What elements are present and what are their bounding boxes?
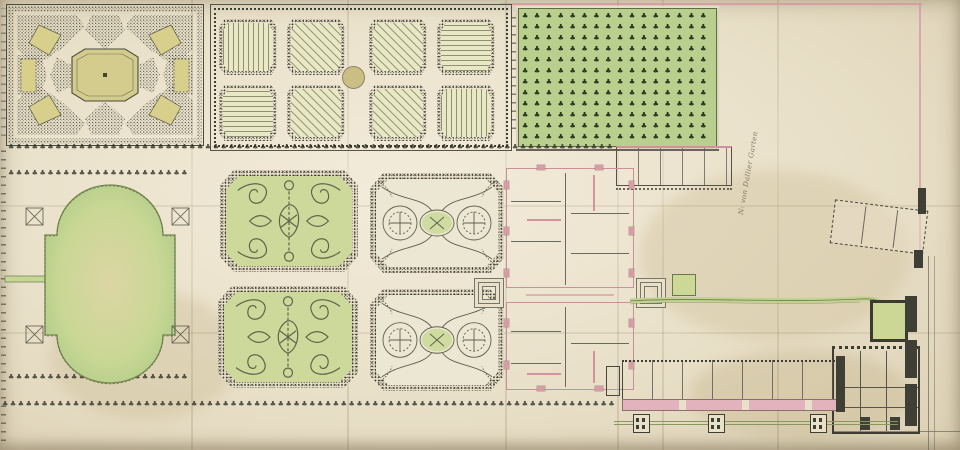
parterre-broderie-ne [370, 173, 504, 273]
orchard-tree-grid: ♣♣♣♣♣♣♣♣♣♣♣♣♣♣♣♣♣♣♣♣♣♣♣♣♣♣♣♣♣♣♣♣♣♣♣♣♣♣♣♣… [522, 11, 714, 144]
parterre-broderie-se [370, 289, 504, 391]
west-annex [606, 366, 620, 396]
palace-west-portico [482, 286, 496, 300]
road-line [934, 256, 935, 450]
wall-fragment [905, 384, 917, 426]
garden-plan-canvas: ♣♣♣♣♣♣♣♣♣♣♣♣♣♣♣♣♣♣♣♣♣♣♣♣♣♣♣♣♣♣♣♣♣♣♣♣♣♣♣♣… [0, 0, 960, 450]
palace [506, 168, 634, 390]
south-fence-line [614, 421, 898, 425]
fence-pavilion [810, 414, 827, 433]
parterre-green-nw [220, 170, 358, 272]
orchard: ♣♣♣♣♣♣♣♣♣♣♣♣♣♣♣♣♣♣♣♣♣♣♣♣♣♣♣♣♣♣♣♣♣♣♣♣♣♣♣♣… [518, 8, 717, 147]
south-wing-corridor [622, 399, 838, 411]
wall-fragment [905, 296, 917, 332]
boundary-line-north [500, 3, 922, 5]
fence-pavilion [633, 414, 650, 433]
kitchen-bed [437, 85, 495, 141]
wall-fragment [836, 356, 845, 412]
wall-fragment [918, 188, 926, 214]
east-square-basin [870, 300, 908, 342]
palace-cross-passage [526, 294, 614, 296]
kitchen-garden [210, 4, 512, 151]
kitchen-bed [369, 19, 427, 75]
parterre-green-sw [218, 286, 358, 388]
kitchen-bed [287, 85, 345, 141]
kitchen-bed [369, 85, 427, 141]
palace-north-block [506, 168, 634, 288]
wall-fragment [914, 250, 923, 268]
tree-allee-row: ♣♣♣♣♣♣♣♣♣♣♣♣♣♣♣♣♣♣♣♣♣♣♣♣♣♣♣♣♣♣♣♣♣♣♣♣♣♣♣♣… [8, 143, 612, 153]
small-canal-basin [672, 274, 696, 296]
wall-fragment [905, 340, 917, 378]
great-pond [0, 160, 215, 395]
south-service-wing [622, 360, 838, 400]
orchard-tick-marks [511, 14, 516, 136]
road-line [928, 256, 929, 450]
fence-pavilion [708, 414, 725, 433]
kitchen-bed [287, 19, 345, 75]
kitchen-bed [437, 19, 495, 75]
kitchen-bed [219, 19, 277, 75]
bosquet-quarter [5, 3, 205, 148]
kitchen-bed [219, 85, 277, 141]
kitchen-garden-basin [342, 66, 365, 89]
tree-allee-row: ♣♣♣♣♣♣♣♣♣♣♣♣♣♣♣♣♣♣♣♣♣♣♣♣♣♣♣♣♣♣♣♣♣♣♣♣♣♣♣♣… [2, 400, 614, 410]
